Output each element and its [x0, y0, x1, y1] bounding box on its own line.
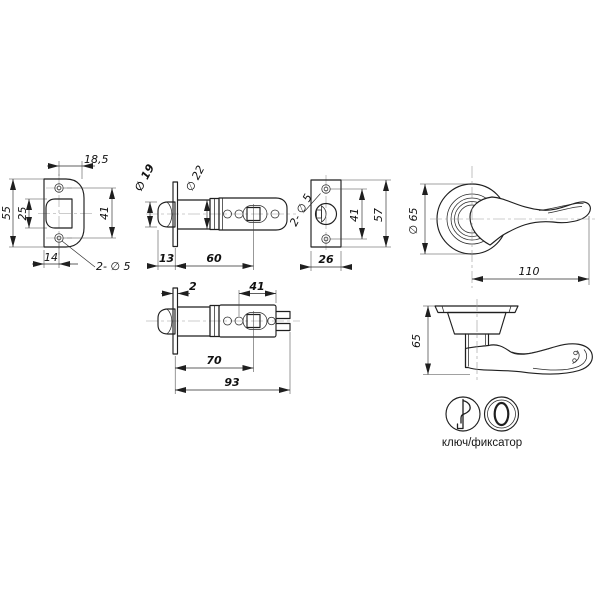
thumbturn-icon	[485, 397, 519, 431]
dim-faceplate-cutout-height: 25	[16, 207, 29, 221]
dim-handle-length: 110	[519, 265, 540, 278]
dim-faceplate-top-width: 18,5	[84, 153, 109, 166]
dim-latch60-backset: 60	[206, 252, 222, 265]
latch-60-view: ∅ 19 ∅ 22 13 60	[132, 162, 296, 270]
dim-latch60-head-len: 13	[159, 252, 175, 265]
handle-side-view: 65	[410, 299, 592, 380]
dim-faceplate-left-offset: 14	[44, 251, 58, 264]
latch-70-view: 2 41 70 93	[146, 280, 300, 394]
strike-dimensions: 2- ∅ 5 41 57 26	[287, 180, 391, 271]
lockset-drawing: 55 25 41 18,5 14	[0, 0, 600, 600]
technical-drawing-canvas: 55 25 41 18,5 14	[0, 0, 600, 600]
dim-strike-height: 57	[372, 208, 385, 222]
dim-latch70-total: 93	[224, 376, 240, 389]
dim-latch70-flange: 2	[189, 280, 197, 293]
dim-faceplate-height: 55	[0, 206, 13, 220]
handle-front-view: ∅ 65 110	[407, 166, 597, 288]
handle-side-dimensions: 65	[410, 306, 470, 375]
dim-handle-rose-dia: ∅ 65	[407, 207, 420, 234]
dim-latch60-bolt-dia: ∅ 19	[132, 162, 157, 194]
strike-latch-section	[322, 206, 327, 222]
dim-faceplate-holes-note: 2- ∅ 5	[96, 260, 131, 273]
variant-caption: ключ/фиксатор	[442, 437, 522, 449]
latch60-body	[178, 200, 211, 229]
variant-icons: ключ/фиксатор	[442, 397, 522, 449]
rose-side-band	[435, 306, 518, 313]
dim-strike-hole-spacing: 41	[348, 208, 361, 222]
dim-faceplate-hole-spacing: 41	[98, 206, 111, 220]
dim-strike-width: 26	[318, 253, 334, 266]
strike-plate-view: 2- ∅ 5 41 57 26	[287, 175, 391, 271]
latch70-body	[178, 307, 211, 336]
latch60-bolt-bevel	[167, 202, 172, 227]
faceplate-view: 55 25 41 18,5 14	[0, 153, 131, 273]
latch70-housing-holes	[224, 311, 276, 372]
dim-latch70-backset: 70	[206, 354, 222, 367]
faceplate-outline	[44, 179, 84, 247]
dim-latch70-tail: 41	[248, 280, 264, 293]
dim-handle-side-height: 65	[410, 334, 423, 348]
faceplate-dimensions: 55 25 41 18,5 14	[0, 153, 131, 273]
key-icon	[446, 397, 480, 431]
dim-latch60-body-dia: ∅ 22	[183, 163, 207, 193]
